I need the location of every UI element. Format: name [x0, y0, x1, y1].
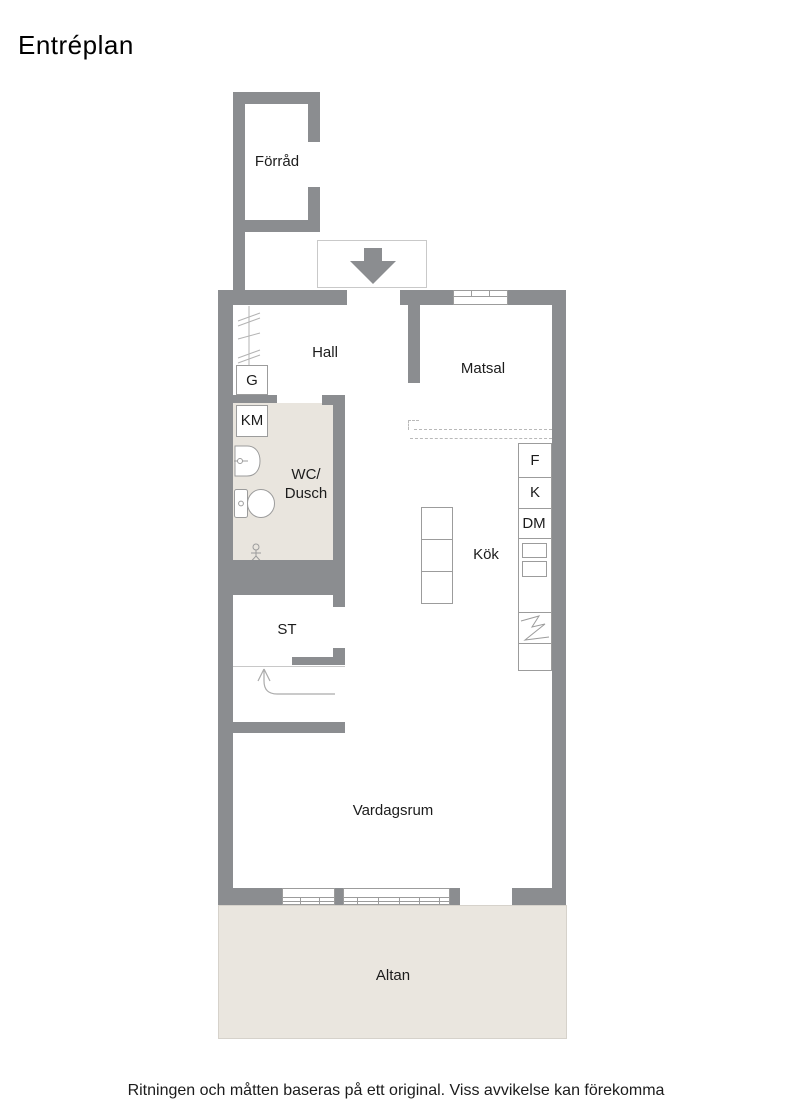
wall-segment — [233, 722, 345, 733]
toilet-icon — [234, 487, 276, 521]
freezer-label: F — [530, 452, 539, 470]
wall-segment — [233, 92, 245, 290]
closet-g-label: G — [246, 372, 258, 390]
counter-break-box — [518, 612, 552, 644]
sink-icon — [234, 444, 262, 478]
kitchen-island — [421, 571, 453, 604]
wall-segment — [508, 290, 566, 305]
ceiling-opening-dashed-line — [414, 429, 552, 430]
room-label-matsal: Matsal — [461, 360, 505, 378]
wall-segment — [218, 888, 282, 905]
wall-segment — [512, 888, 566, 905]
floor-plan-page: Entréplan Förråd — [0, 0, 792, 1120]
fridge-label: K — [530, 484, 540, 502]
ceiling-opening-dashed-line — [410, 438, 552, 439]
wall-segment — [233, 220, 320, 232]
wall-segment — [333, 595, 345, 607]
wall-segment — [552, 305, 566, 888]
window-icon — [343, 888, 450, 905]
wall-segment — [450, 888, 460, 905]
floor-plan: Förråd — [0, 0, 792, 1120]
entrance-box — [317, 240, 427, 288]
kitchen-island — [421, 539, 453, 572]
wall-segment — [218, 560, 345, 595]
stove-burner — [522, 561, 547, 577]
disclaimer-text: Ritningen och måtten baseras på ett orig… — [0, 1082, 792, 1100]
floor-drain-icon — [247, 542, 265, 562]
room-label-forrad: Förråd — [255, 153, 299, 171]
wall-segment — [400, 290, 453, 305]
wall-segment — [335, 888, 343, 905]
room-label-vardagsrum: Vardagsrum — [353, 802, 434, 820]
room-label-altan: Altan — [376, 967, 410, 985]
entrance-arrow-icon — [318, 241, 426, 287]
wall-segment — [308, 92, 320, 142]
room-label-wc-dusch: WC/ Dusch — [285, 465, 328, 503]
window-icon — [453, 290, 508, 305]
wall-segment — [233, 92, 320, 104]
dishwasher-label: DM — [522, 515, 545, 533]
room-label-kok: Kök — [473, 546, 499, 564]
wall-segment — [408, 305, 420, 383]
window-icon — [282, 888, 335, 905]
room-label-hall: Hall — [312, 344, 338, 362]
wall-segment — [333, 395, 345, 560]
stove-burner — [522, 543, 547, 558]
counter-break-zigzag-icon — [519, 613, 551, 643]
wardrobe-hatch-icon — [236, 306, 262, 366]
washing-machine-label: KM — [241, 412, 264, 430]
kitchen-island — [421, 507, 453, 540]
room-label-st: ST — [277, 621, 296, 639]
counter-end-box — [518, 643, 552, 671]
stair-arrow-icon — [251, 663, 341, 697]
wall-segment — [218, 290, 233, 905]
wall-segment — [218, 290, 347, 305]
